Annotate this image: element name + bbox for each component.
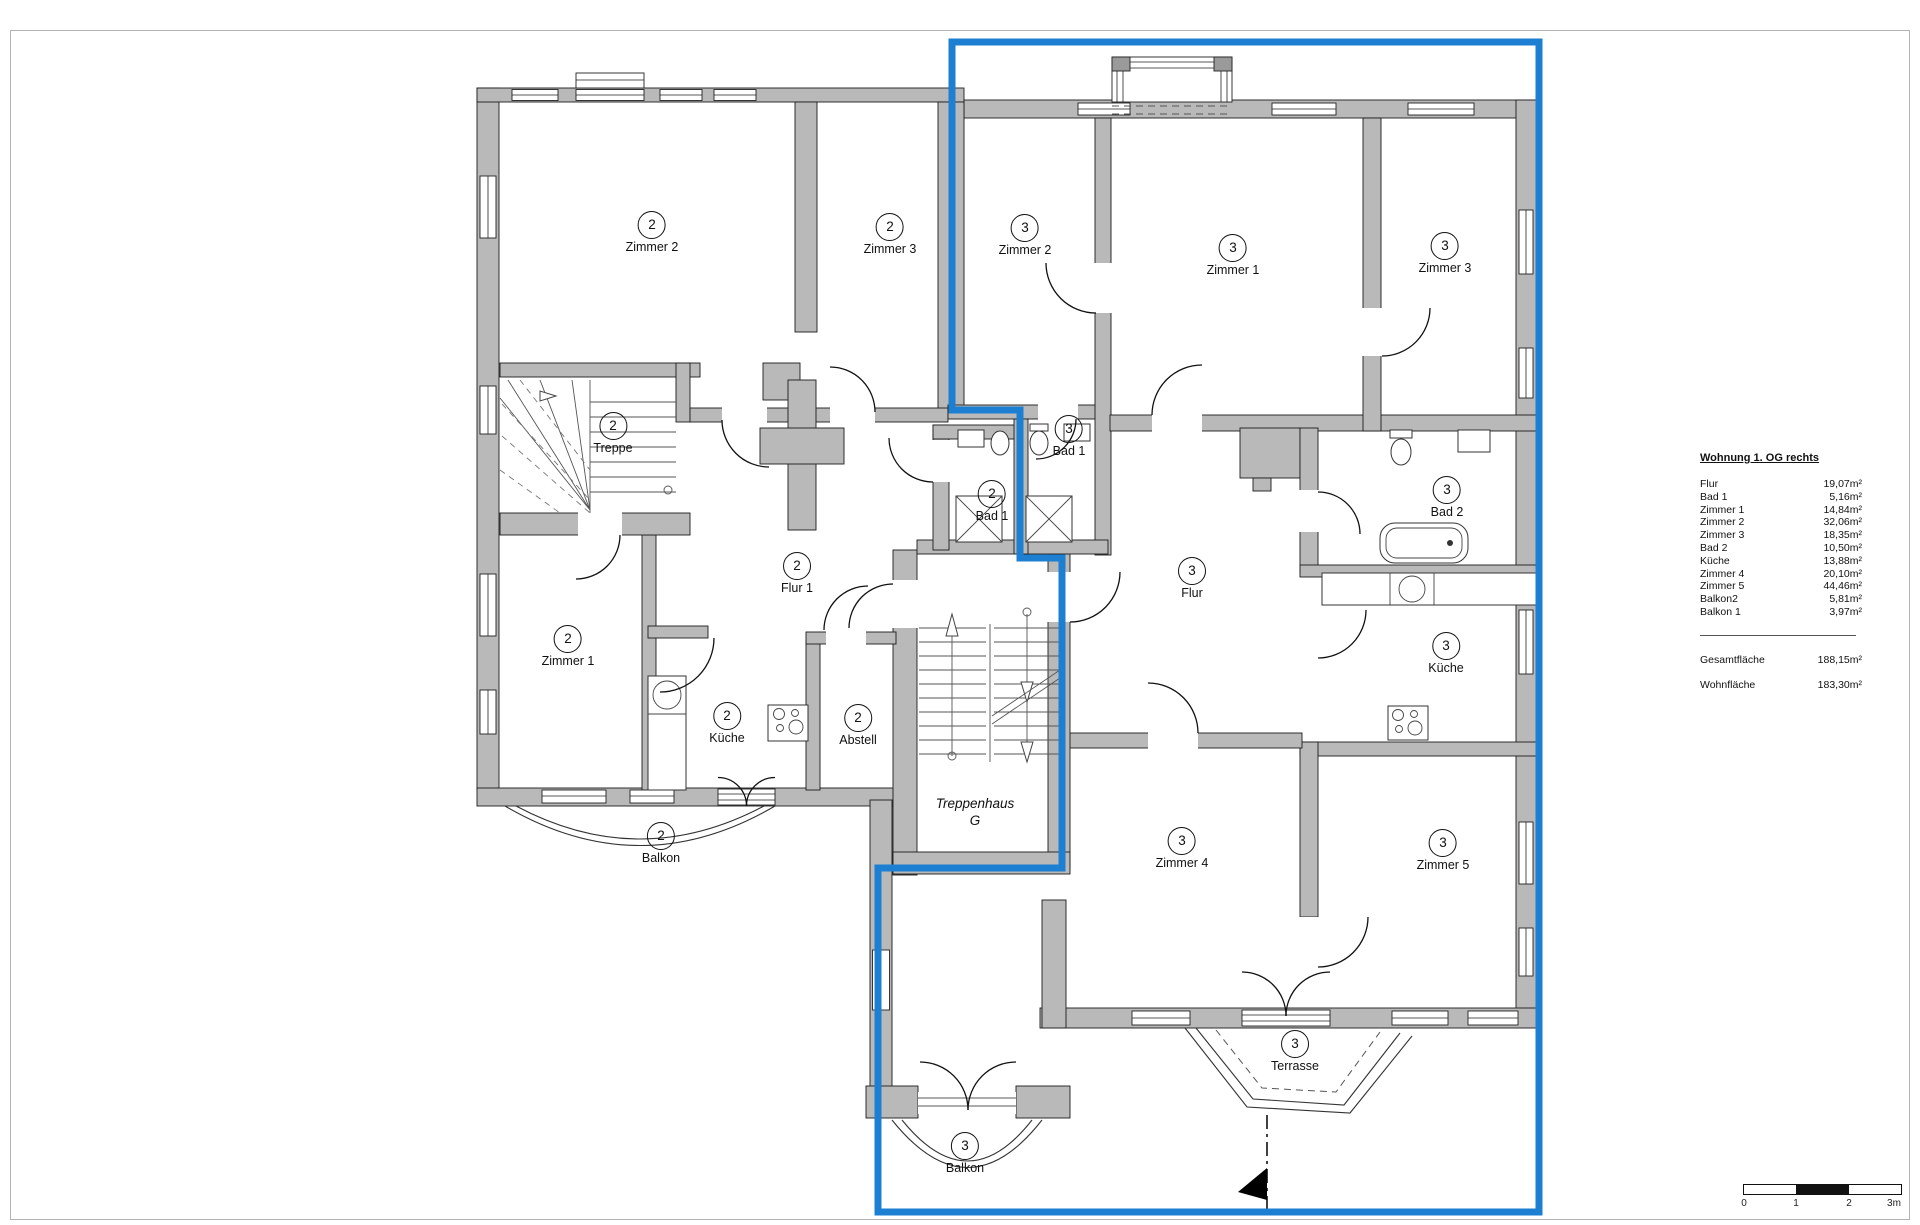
room-label: 2Zimmer 3 bbox=[864, 213, 917, 256]
legend-row: Zimmer 232,06m² bbox=[1700, 516, 1862, 529]
legend-row: Zimmer 318,35m² bbox=[1700, 529, 1862, 542]
unit-number-badge: 3 bbox=[1432, 632, 1460, 660]
legend-row-value: 18,35m² bbox=[1823, 529, 1862, 542]
legend-row-value: 44,46m² bbox=[1823, 580, 1862, 593]
legend-row-label: Flur bbox=[1700, 478, 1718, 491]
room-label: 3Balkon bbox=[946, 1132, 984, 1175]
unit-number-badge: 3 bbox=[951, 1132, 979, 1160]
room-name: Bad 2 bbox=[1431, 506, 1464, 519]
room-name: Flur bbox=[1178, 587, 1206, 600]
legend-row-label: Küche bbox=[1700, 555, 1730, 568]
legend: Wohnung 1. OG rechts Flur19,07m²Bad 15,1… bbox=[1700, 452, 1862, 703]
unit-number-badge: 3 bbox=[1281, 1030, 1309, 1058]
room-label: 2Bad 1 bbox=[976, 480, 1009, 523]
legend-total: Gesamtfläche188,15m² bbox=[1700, 654, 1862, 667]
room-name: Bad 1 bbox=[1053, 445, 1086, 458]
legend-row: Balkon25,81m² bbox=[1700, 593, 1862, 606]
unit-number-badge: 3 bbox=[1219, 234, 1247, 262]
legend-row-label: Zimmer 5 bbox=[1700, 580, 1744, 593]
legend-row: Zimmer 544,46m² bbox=[1700, 580, 1862, 593]
room-label: 3Küche bbox=[1428, 632, 1463, 675]
scale-label-1: 1 bbox=[1793, 1198, 1799, 1209]
room-label: 3Zimmer 2 bbox=[999, 214, 1052, 257]
legend-total-value: 183,30m² bbox=[1818, 679, 1862, 692]
scale-segment bbox=[1849, 1185, 1901, 1194]
floorplan-page: 2Zimmer 22Zimmer 33Zimmer 23Zimmer 13Zim… bbox=[0, 0, 1920, 1225]
room-label: 3Terrasse bbox=[1271, 1030, 1319, 1073]
room-label: 3Bad 1 bbox=[1053, 415, 1086, 458]
room-name: Küche bbox=[1428, 662, 1463, 675]
room-name: Zimmer 2 bbox=[999, 244, 1052, 257]
room-name: Flur 1 bbox=[781, 582, 813, 595]
unit-number-badge: 3 bbox=[1429, 829, 1457, 857]
legend-row-label: Zimmer 2 bbox=[1700, 516, 1744, 529]
room-label: 2Abstell bbox=[839, 704, 877, 747]
unit-number-badge: 3 bbox=[1011, 214, 1039, 242]
room-label: 3Zimmer 1 bbox=[1207, 234, 1260, 277]
legend-row: Zimmer 420,10m² bbox=[1700, 568, 1862, 581]
legend-row-label: Balkon 1 bbox=[1700, 606, 1741, 619]
room-label: 2Flur 1 bbox=[781, 552, 813, 595]
scale-bar bbox=[1743, 1184, 1902, 1195]
legend-row: Flur19,07m² bbox=[1700, 478, 1862, 491]
room-label: 2Küche bbox=[709, 702, 744, 745]
scale-segment bbox=[1796, 1185, 1849, 1194]
room-name: Zimmer 3 bbox=[1419, 262, 1472, 275]
stairwell-label-line1: Treppenhaus bbox=[936, 796, 1015, 813]
room-label: 2Zimmer 2 bbox=[626, 211, 679, 254]
legend-row-label: Zimmer 4 bbox=[1700, 568, 1744, 581]
legend-rows: Flur19,07m²Bad 15,16m²Zimmer 114,84m²Zim… bbox=[1700, 478, 1862, 619]
room-name: Zimmer 1 bbox=[1207, 264, 1260, 277]
legend-row-value: 10,50m² bbox=[1823, 542, 1862, 555]
unit-number-badge: 2 bbox=[647, 822, 675, 850]
unit-number-badge: 2 bbox=[599, 412, 627, 440]
legend-total-value: 188,15m² bbox=[1818, 654, 1862, 667]
room-name: Zimmer 1 bbox=[542, 655, 595, 668]
room-name: Zimmer 3 bbox=[864, 243, 917, 256]
room-name: Zimmer 4 bbox=[1156, 857, 1209, 870]
legend-row-value: 13,88m² bbox=[1823, 555, 1862, 568]
legend-row-label: Balkon2 bbox=[1700, 593, 1738, 606]
legend-total-label: Gesamtfläche bbox=[1700, 654, 1765, 667]
floor-plan-drawing bbox=[0, 0, 1920, 1225]
legend-totals: Gesamtfläche188,15m²Wohnfläche183,30m² bbox=[1700, 654, 1862, 692]
legend-total: Wohnfläche183,30m² bbox=[1700, 679, 1862, 692]
unit-number-badge: 3 bbox=[1055, 415, 1083, 443]
legend-row-label: Bad 1 bbox=[1700, 491, 1727, 504]
legend-row: Bad 210,50m² bbox=[1700, 542, 1862, 555]
legend-row-label: Bad 2 bbox=[1700, 542, 1727, 555]
legend-row-value: 5,81m² bbox=[1829, 593, 1862, 606]
room-name: Zimmer 2 bbox=[626, 241, 679, 254]
unit-number-badge: 2 bbox=[844, 704, 872, 732]
unit-number-badge: 3 bbox=[1433, 476, 1461, 504]
unit-number-badge: 2 bbox=[783, 552, 811, 580]
door-openings-layer bbox=[578, 263, 1382, 1114]
legend-row-value: 5,16m² bbox=[1829, 491, 1862, 504]
apartment-boundary-highlight bbox=[878, 42, 1539, 1212]
scale-label-2: 2 bbox=[1846, 1198, 1852, 1209]
room-label: 3Bad 2 bbox=[1431, 476, 1464, 519]
room-name: Treppe bbox=[593, 442, 632, 455]
legend-row-value: 32,06m² bbox=[1823, 516, 1862, 529]
unit-number-badge: 2 bbox=[713, 702, 741, 730]
room-label: 3Zimmer 3 bbox=[1419, 232, 1472, 275]
room-name: Abstell bbox=[839, 734, 877, 747]
room-label: 2Zimmer 1 bbox=[542, 625, 595, 668]
room-label: 3Zimmer 5 bbox=[1417, 829, 1470, 872]
legend-row-label: Zimmer 3 bbox=[1700, 529, 1744, 542]
legend-row: Bad 15,16m² bbox=[1700, 491, 1862, 504]
legend-row-value: 20,10m² bbox=[1823, 568, 1862, 581]
doors-layer bbox=[576, 263, 1430, 1110]
room-label: 3Zimmer 4 bbox=[1156, 827, 1209, 870]
legend-row: Zimmer 114,84m² bbox=[1700, 504, 1862, 517]
legend-row: Balkon 13,97m² bbox=[1700, 606, 1862, 619]
legend-divider bbox=[1700, 635, 1856, 636]
unit-number-badge: 2 bbox=[638, 211, 666, 239]
unit-number-badge: 2 bbox=[978, 480, 1006, 508]
stairwell-label: Treppenhaus G bbox=[936, 796, 1015, 830]
room-name: Küche bbox=[709, 732, 744, 745]
legend-row: Küche13,88m² bbox=[1700, 555, 1862, 568]
legend-row-value: 3,97m² bbox=[1829, 606, 1862, 619]
unit-number-badge: 3 bbox=[1431, 232, 1459, 260]
stairwell-label-line2: G bbox=[936, 813, 1015, 830]
room-label: 3Flur bbox=[1178, 557, 1206, 600]
legend-row-label: Zimmer 1 bbox=[1700, 504, 1744, 517]
room-name: Terrasse bbox=[1271, 1060, 1319, 1073]
room-name: Balkon bbox=[642, 852, 680, 865]
legend-total-label: Wohnfläche bbox=[1700, 679, 1755, 692]
unit-number-badge: 3 bbox=[1168, 827, 1196, 855]
unit-number-badge: 2 bbox=[554, 625, 582, 653]
scale-label-3: 3m bbox=[1887, 1198, 1901, 1209]
scale-label-0: 0 bbox=[1741, 1198, 1747, 1209]
legend-row-value: 19,07m² bbox=[1823, 478, 1862, 491]
section-mark bbox=[1238, 1115, 1267, 1212]
room-label: 2Balkon bbox=[642, 822, 680, 865]
legend-title: Wohnung 1. OG rechts bbox=[1700, 452, 1862, 464]
legend-row-value: 14,84m² bbox=[1823, 504, 1862, 517]
unit-number-badge: 2 bbox=[876, 213, 904, 241]
scale-segment bbox=[1744, 1185, 1796, 1194]
room-label: 2Treppe bbox=[593, 412, 632, 455]
unit-number-badge: 3 bbox=[1178, 557, 1206, 585]
room-name: Zimmer 5 bbox=[1417, 859, 1470, 872]
room-name: Bad 1 bbox=[976, 510, 1009, 523]
room-name: Balkon bbox=[946, 1162, 984, 1175]
